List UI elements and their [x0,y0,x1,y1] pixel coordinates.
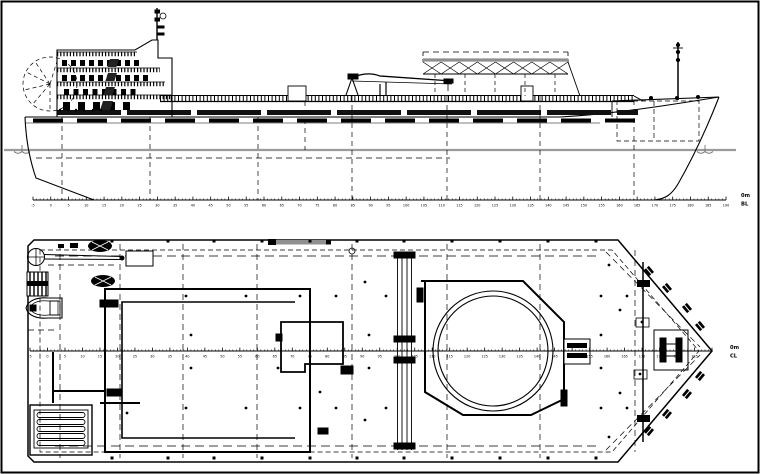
svg-text:20: 20 [115,355,119,359]
svg-text:60: 60 [262,204,266,208]
svg-text:165: 165 [621,355,627,359]
svg-text:20: 20 [120,204,124,208]
lattice-gantry-profile [423,52,580,96]
deck-house-box-1 [288,86,306,101]
svg-text:190: 190 [723,204,729,208]
ship-general-arrangement-drawing: -505101520253035404550556065707580859095… [0,0,760,474]
svg-text:40: 40 [185,355,189,359]
svg-text:-5: -5 [31,204,34,208]
waterline [4,145,736,153]
drawing-canvas: -505101520253035404550556065707580859095… [0,0,760,474]
svg-text:65: 65 [273,355,277,359]
svg-text:180: 180 [687,204,693,208]
svg-text:0: 0 [50,204,52,208]
svg-text:55: 55 [238,355,242,359]
bow-equipment [634,262,705,442]
svg-text:150: 150 [569,355,575,359]
svg-text:145: 145 [551,355,557,359]
svg-text:150: 150 [581,204,587,208]
bow-diagonal-dashed-bottom [606,355,700,450]
svg-text:75: 75 [308,355,312,359]
louver-room [30,405,92,455]
svg-text:160: 160 [604,355,610,359]
mooring-winches [58,240,115,287]
svg-text:145: 145 [563,204,569,208]
svg-text:30: 30 [155,204,159,208]
svg-text:25: 25 [133,355,137,359]
svg-text:140: 140 [534,355,540,359]
svg-text:165: 165 [634,204,640,208]
svg-text:185: 185 [691,355,697,359]
svg-text:105: 105 [421,204,427,208]
bow-stem [654,97,719,200]
svg-text:125: 125 [492,204,498,208]
midship-deckhouse-plan [276,322,353,374]
lifeboat [26,298,62,318]
stern-equipment [26,240,328,455]
svg-text:50: 50 [220,355,224,359]
svg-text:80: 80 [333,204,337,208]
stern-crane-plan [28,249,125,266]
svg-text:155: 155 [598,204,604,208]
svg-text:115: 115 [456,204,462,208]
svg-text:60: 60 [255,355,259,359]
deck-crane-profile [346,74,453,95]
svg-text:175: 175 [656,355,662,359]
superstructure [23,8,172,117]
bow-diagonal-dashed-top [606,252,700,347]
svg-text:75: 75 [315,204,319,208]
gantry-x-braces [423,62,568,74]
svg-text:130: 130 [499,355,505,359]
svg-text:100: 100 [394,355,400,359]
svg-text:110: 110 [429,355,435,359]
turntable [417,281,567,415]
svg-text:120: 120 [474,204,480,208]
svg-text:45: 45 [209,204,213,208]
svg-text:55: 55 [244,204,248,208]
svg-text:160: 160 [616,204,622,208]
svg-text:105: 105 [411,355,417,359]
svg-text:35: 35 [168,355,172,359]
svg-text:95: 95 [378,355,382,359]
svg-text:95: 95 [386,204,390,208]
svg-text:10: 10 [80,355,84,359]
svg-text:70: 70 [297,204,301,208]
svg-text:135: 135 [527,204,533,208]
svg-text:175: 175 [669,204,675,208]
svg-text:65: 65 [280,204,284,208]
svg-text:50: 50 [226,204,230,208]
gantry-end-diagonal [568,62,580,96]
svg-text:30: 30 [150,355,154,359]
svg-text:40: 40 [191,204,195,208]
fore-mast [673,42,683,100]
svg-text:5: 5 [67,204,69,208]
plan-view: -505101520253035404550556065707580859095… [26,239,739,462]
svg-text:5: 5 [64,355,66,359]
svg-text:85: 85 [343,355,347,359]
stern-deckhouse-plan [52,289,328,452]
profile-view: -505101520253035404550556065707580859095… [4,8,750,208]
svg-text:35: 35 [173,204,177,208]
svg-text:-5: -5 [28,355,31,359]
profile-frame-scale: -505101520253035404550556065707580859095… [31,197,729,208]
stern-hatch-box [126,251,153,266]
svg-text:185: 185 [705,204,711,208]
svg-text:45: 45 [203,355,207,359]
svg-text:90: 90 [368,204,372,208]
octagon-coaming [421,281,564,415]
svg-text:170: 170 [652,204,658,208]
plan-frame-scale: -505101520253035404550556065707580859095… [28,348,712,359]
plan-datum-top-label: 0m [730,345,739,351]
radar-scanner [160,13,166,19]
svg-text:15: 15 [98,355,102,359]
svg-text:130: 130 [510,204,516,208]
main-mast [155,8,166,40]
stern-crane-arc-dashed [23,57,77,111]
svg-text:120: 120 [464,355,470,359]
svg-text:25: 25 [137,204,141,208]
svg-text:125: 125 [481,355,487,359]
svg-text:180: 180 [674,355,680,359]
svg-text:90: 90 [360,355,364,359]
svg-text:115: 115 [446,355,452,359]
svg-text:140: 140 [545,204,551,208]
svg-text:0: 0 [46,355,48,359]
profile-datum-top-label: 0m [741,193,750,199]
svg-text:100: 100 [403,204,409,208]
svg-text:70: 70 [290,355,294,359]
svg-text:85: 85 [351,204,355,208]
plan-datum-bottom-label: CL [730,354,738,360]
svg-text:80: 80 [325,355,329,359]
svg-text:10: 10 [84,204,88,208]
gantry-legs-dashed [435,74,555,96]
svg-text:155: 155 [586,355,592,359]
stern-contour [25,117,94,200]
svg-text:170: 170 [639,355,645,359]
svg-text:15: 15 [102,204,106,208]
svg-text:110: 110 [438,204,444,208]
svg-text:135: 135 [516,355,522,359]
deck-house-box-2 [521,86,533,101]
grating-rack [27,272,48,296]
profile-datum-bottom-label: BL [741,202,749,208]
windlass [654,330,688,370]
